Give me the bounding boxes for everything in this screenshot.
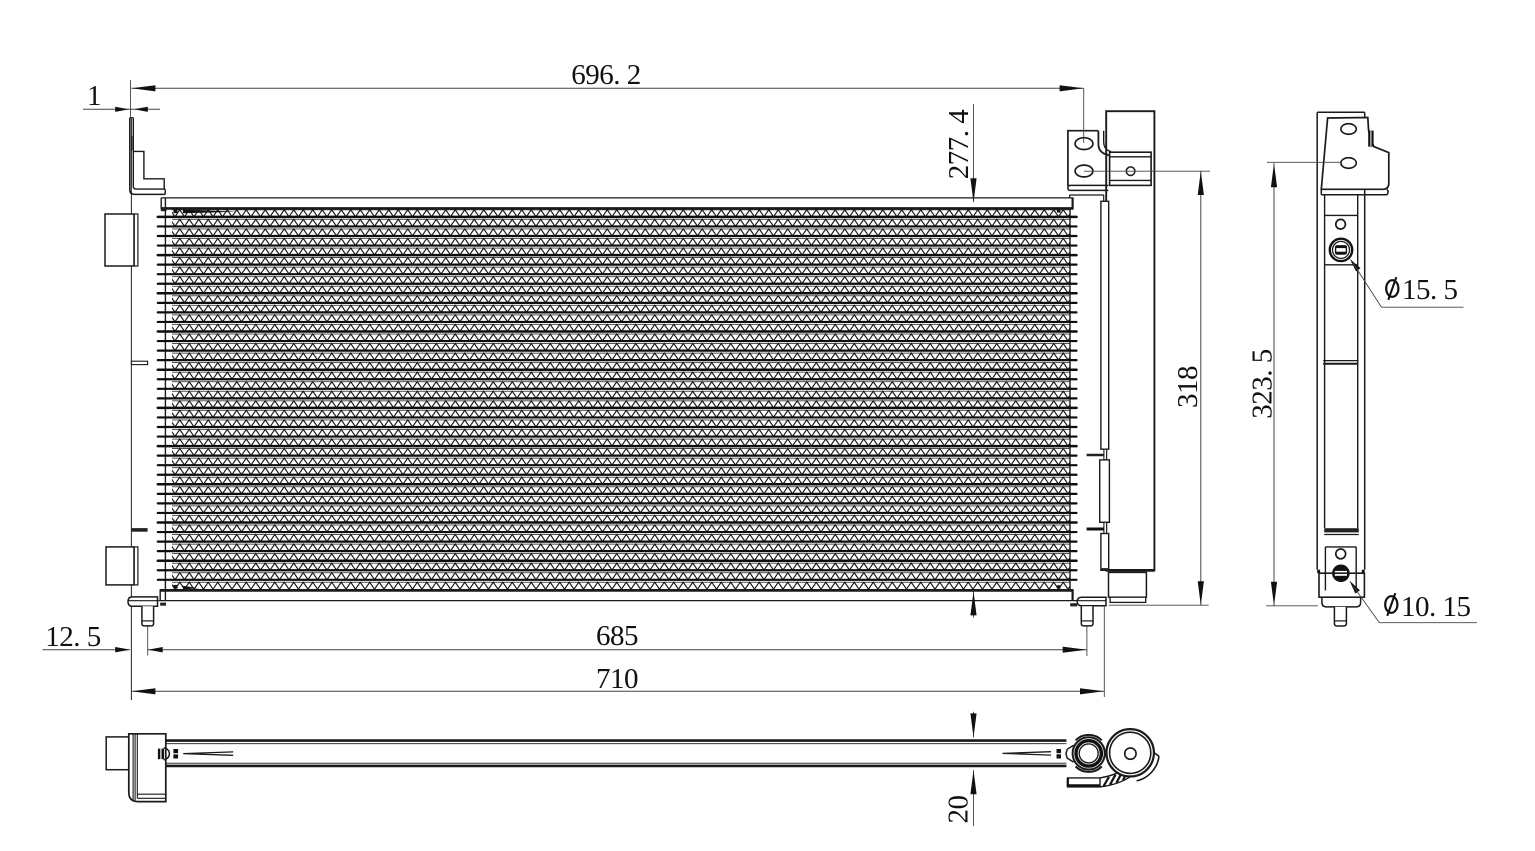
svg-text:1: 1 xyxy=(87,80,101,112)
svg-text:685: 685 xyxy=(596,620,638,652)
svg-text:12. 5: 12. 5 xyxy=(45,621,101,653)
svg-text:323. 5: 323. 5 xyxy=(1247,349,1279,419)
svg-text:15. 5: 15. 5 xyxy=(1402,274,1458,306)
svg-text:10. 15: 10. 15 xyxy=(1401,591,1471,623)
svg-text:696. 2: 696. 2 xyxy=(571,59,641,91)
svg-text:277. 4: 277. 4 xyxy=(943,109,975,180)
svg-text:318: 318 xyxy=(1172,366,1204,408)
svg-text:20: 20 xyxy=(943,796,975,824)
svg-text:710: 710 xyxy=(596,663,638,695)
